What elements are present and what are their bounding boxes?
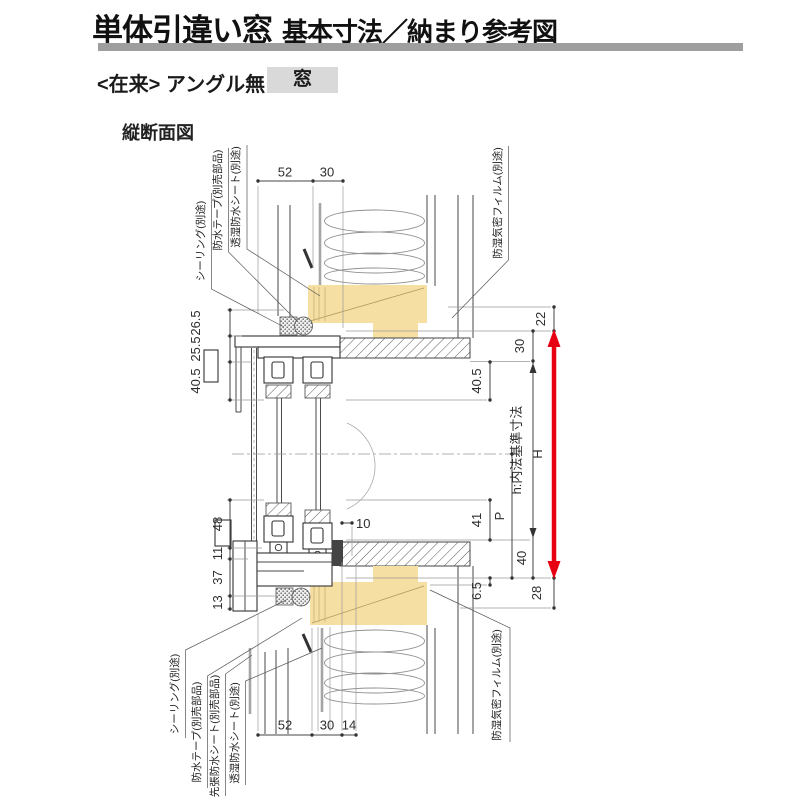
dim-left-37: 37 [210, 570, 225, 584]
dim-left-40-5: 40.5 [188, 368, 203, 393]
h-dimension-arrow: H [530, 329, 561, 579]
sealing-bottom-icon [276, 588, 293, 605]
window-frame [204, 317, 516, 611]
dim-mid-10: 10 [356, 516, 370, 531]
dim-left-26-5: 26.5 [188, 310, 203, 335]
dims-top: 52 30 [256, 165, 344, 183]
sill-spacer-block [373, 566, 418, 582]
dim-right-22: 22 [533, 312, 548, 326]
arrow-down-icon [548, 561, 561, 579]
callout-film-bottom: 防湿気密フィルム(別途) [490, 629, 503, 741]
waterproof-tape-bottom-icon [303, 634, 311, 652]
dims-bottom: 52 30 14 [256, 718, 357, 737]
swing-arc [347, 423, 375, 509]
sill-wood-block [310, 582, 427, 625]
dim-right-6-5: 6.5 [469, 582, 484, 600]
dim-right-40-5: 40.5 [469, 368, 484, 393]
dim-right-30: 30 [512, 339, 527, 353]
dim-bottom-52: 52 [278, 718, 292, 733]
insulation-batt-top-icon [325, 210, 425, 284]
callout-sealing-bottom: シーリング(別途) [168, 654, 181, 735]
dim-top-52: 52 [278, 165, 292, 180]
callout-sealing-top: シーリング(別途) [194, 201, 207, 282]
dim-right-40: 40 [514, 551, 529, 565]
vertical-section-drawing: 52 30 52 30 14 26.5 25.5 40.5 48 11 37 1… [0, 0, 800, 800]
dim-bottom-30: 30 [320, 718, 334, 733]
dim-right-41: 41 [469, 513, 484, 527]
dim-left-48: 48 [210, 517, 225, 531]
dim-left-25-5: 25.5 [188, 336, 203, 361]
sill-riser [332, 540, 343, 566]
callout-presheet-bottom: 先張防水シート(別売部品) [208, 675, 221, 798]
dim-bottom-14: 14 [342, 718, 356, 733]
dim-h-symbol: H [530, 449, 545, 458]
callout-sheet-top: 透湿防水シート(別途) [229, 146, 242, 248]
dim-left-11: 11 [210, 547, 225, 561]
dim-left-13: 13 [210, 595, 225, 609]
backer-rod-top-icon [295, 317, 313, 335]
backer-rod-bottom-icon [292, 588, 310, 606]
interior-board-top [340, 338, 470, 358]
dim-right-28: 28 [529, 586, 544, 600]
interior-board-bottom [340, 542, 470, 566]
callout-sheet-bottom: 透湿防水シート(別途) [228, 682, 241, 784]
callout-film-top: 防湿気密フィルム(別途) [491, 147, 504, 259]
lintel-spacer-block [373, 323, 418, 338]
arrow-up-icon [548, 329, 561, 347]
waterproof-tape-top-icon [304, 249, 312, 268]
callout-tape-bottom: 防水テープ(別売部品) [190, 682, 203, 783]
insulation-batt-bottom-icon [325, 630, 425, 704]
dim-inner-height-label: h:内法基準寸法 [509, 406, 524, 495]
sash-outer [264, 357, 293, 553]
dim-top-30: 30 [320, 165, 334, 180]
sash-inner [303, 357, 332, 560]
callout-tape-top: 防水テープ(別売部品) [211, 150, 224, 251]
catalog-page: 単体引違い窓 基本寸法／納まり参考図 <在来> アングル無 窓 縦断面図 [0, 0, 800, 800]
dim-right-p: P [492, 512, 507, 521]
